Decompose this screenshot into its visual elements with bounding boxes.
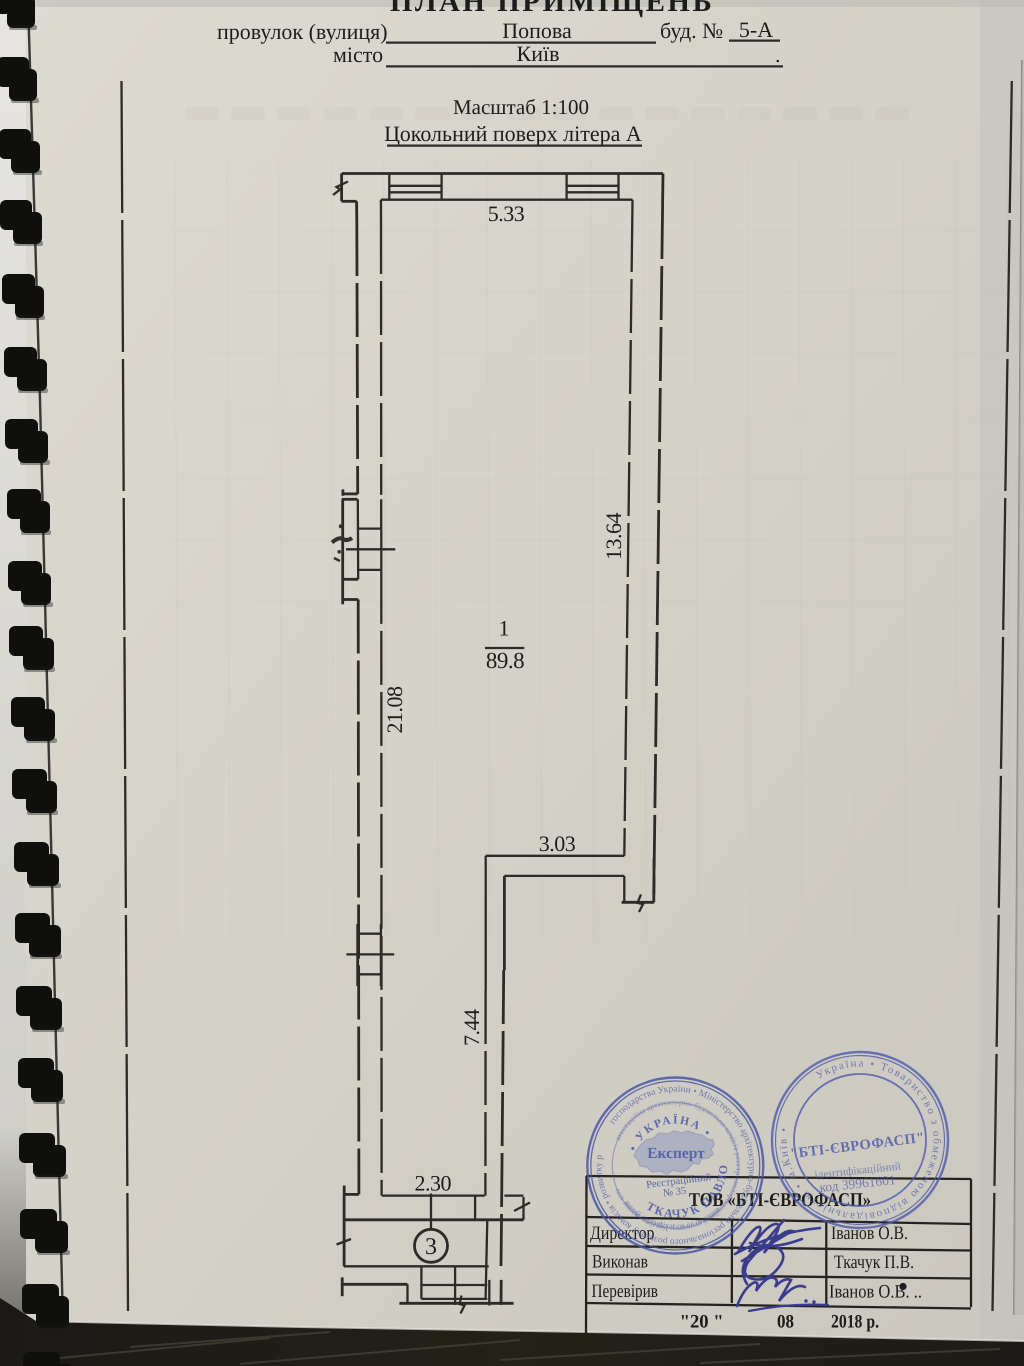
svg-text:провулок (вулиця): провулок (вулиця) <box>217 19 388 44</box>
svg-text:Іванов О.В. ..: Іванов О.В. .. <box>829 1282 922 1303</box>
svg-text:2018 р.: 2018 р. <box>831 1312 879 1333</box>
svg-text:5.33: 5.33 <box>488 201 525 226</box>
svg-text:7.44: 7.44 <box>459 1009 484 1046</box>
svg-text:буд. №: буд. № <box>660 18 723 43</box>
svg-text:21.08: 21.08 <box>382 686 407 734</box>
svg-text:13.64: 13.64 <box>601 513 626 561</box>
svg-text:Масштаб 1:100: Масштаб 1:100 <box>453 95 589 119</box>
svg-text:Ткачук П.В.: Ткачук П.В. <box>834 1252 914 1273</box>
svg-text:2.30: 2.30 <box>414 1171 451 1196</box>
svg-text:Виконав: Виконав <box>592 1252 648 1273</box>
svg-text:5-А: 5-А <box>739 17 773 42</box>
svg-text:"20 ": "20 " <box>680 1312 724 1333</box>
svg-text:3.03: 3.03 <box>539 831 576 856</box>
svg-text:ПЛАН ПРИМІЩЕНЬ: ПЛАН ПРИМІЩЕНЬ <box>390 0 714 18</box>
svg-text:Київ: Київ <box>517 41 560 66</box>
svg-text:.: . <box>775 42 781 67</box>
svg-text:Експерт: Експерт <box>647 1145 705 1162</box>
svg-text:3: 3 <box>425 1234 437 1260</box>
svg-text:1: 1 <box>499 616 510 641</box>
svg-text:08: 08 <box>777 1312 794 1333</box>
svg-text:Попова: Попова <box>502 18 572 43</box>
svg-text:89.8: 89.8 <box>486 648 524 673</box>
svg-text:Цокольний поверх літера А: Цокольний поверх літера А <box>384 121 642 146</box>
svg-text:Перевірив: Перевірив <box>592 1281 659 1302</box>
svg-text:місто: місто <box>333 42 383 67</box>
